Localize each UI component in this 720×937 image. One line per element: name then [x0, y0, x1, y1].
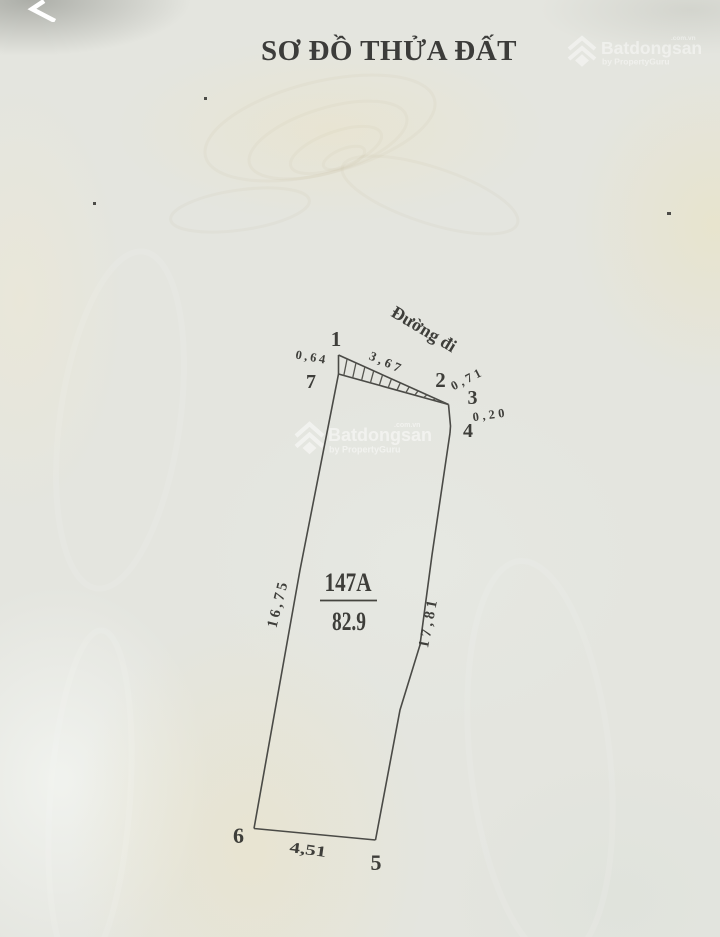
svg-text:1: 1: [331, 327, 342, 351]
svg-text:4: 4: [463, 420, 473, 442]
svg-text:.com.vn: .com.vn: [394, 422, 420, 429]
svg-text:147A: 147A: [325, 568, 372, 597]
svg-text:6: 6: [233, 823, 244, 848]
svg-text:4,51: 4,51: [288, 840, 327, 861]
svg-text:3,67: 3,67: [367, 348, 404, 375]
svg-text:16,75: 16,75: [265, 581, 292, 630]
svg-text:2: 2: [435, 368, 446, 392]
svg-text:0,71: 0,71: [449, 366, 484, 393]
svg-text:3: 3: [468, 387, 478, 409]
svg-text:17,81: 17,81: [416, 599, 441, 649]
svg-text:0,64: 0,64: [295, 348, 328, 367]
svg-text:Batdongsan: Batdongsan: [328, 425, 432, 445]
svg-text:0,20: 0,20: [472, 406, 506, 424]
svg-text:5: 5: [371, 850, 382, 875]
svg-text:7: 7: [306, 371, 316, 393]
svg-text:82.9: 82.9: [332, 607, 366, 636]
svg-text:Đường đi: Đường đi: [388, 302, 460, 356]
svg-text:by PropertyGuru: by PropertyGuru: [329, 445, 401, 455]
